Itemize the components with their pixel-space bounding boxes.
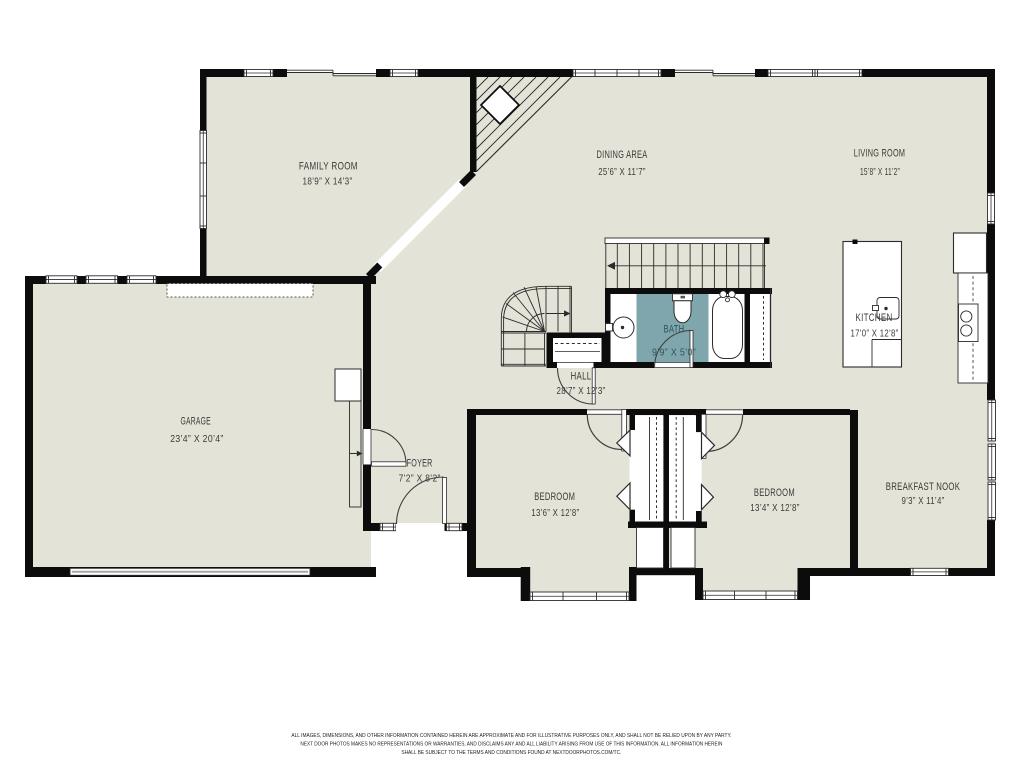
svg-text:HALL: HALL bbox=[571, 371, 592, 383]
svg-text:23’4” X 20’4”: 23’4” X 20’4” bbox=[170, 433, 223, 445]
svg-text:BEDROOM: BEDROOM bbox=[754, 487, 795, 499]
svg-text:ALL IMAGES, DIMENSIONS, AND OT: ALL IMAGES, DIMENSIONS, AND OTHER INFORM… bbox=[291, 733, 731, 739]
svg-text:25’6” X 11’7”: 25’6” X 11’7” bbox=[598, 166, 646, 178]
svg-text:GARAGE: GARAGE bbox=[180, 415, 211, 427]
svg-text:BREAKFAST NOOK: BREAKFAST NOOK bbox=[886, 481, 961, 493]
svg-text:KITCHEN: KITCHEN bbox=[856, 312, 893, 324]
svg-text:17’0” X 12’8”: 17’0” X 12’8” bbox=[851, 328, 899, 340]
svg-text:13’6” X 12’8”: 13’6” X 12’8” bbox=[531, 507, 579, 519]
svg-text:9’3” X 11’4”: 9’3” X 11’4” bbox=[902, 495, 945, 507]
svg-text:NEXT DOOR PHOTOS MAKES NO REPR: NEXT DOOR PHOTOS MAKES NO REPRESENTATION… bbox=[300, 741, 722, 747]
svg-text:BEDROOM: BEDROOM bbox=[534, 491, 575, 503]
svg-text:9’9” X 5’0”: 9’9” X 5’0” bbox=[652, 346, 696, 358]
svg-text:FOYER: FOYER bbox=[407, 457, 433, 469]
svg-text:18’9” X 14’3”: 18’9” X 14’3” bbox=[303, 175, 353, 187]
svg-text:15’8” X 11’2”: 15’8” X 11’2” bbox=[860, 166, 900, 178]
svg-text:7’2” X 8’2”: 7’2” X 8’2” bbox=[399, 472, 441, 484]
svg-text:28’7” X 12’3”: 28’7” X 12’3” bbox=[557, 385, 606, 397]
svg-text:13’4” X 12’8”: 13’4” X 12’8” bbox=[750, 502, 799, 514]
svg-text:FAMILY ROOM: FAMILY ROOM bbox=[299, 160, 358, 172]
svg-text:BATH: BATH bbox=[664, 324, 685, 336]
svg-text:LIVING ROOM: LIVING ROOM bbox=[854, 148, 906, 160]
svg-text:SHALL BE SUBJECT TO THE TERMS: SHALL BE SUBJECT TO THE TERMS AND CONDIT… bbox=[401, 750, 621, 756]
svg-text:DINING AREA: DINING AREA bbox=[597, 149, 648, 161]
